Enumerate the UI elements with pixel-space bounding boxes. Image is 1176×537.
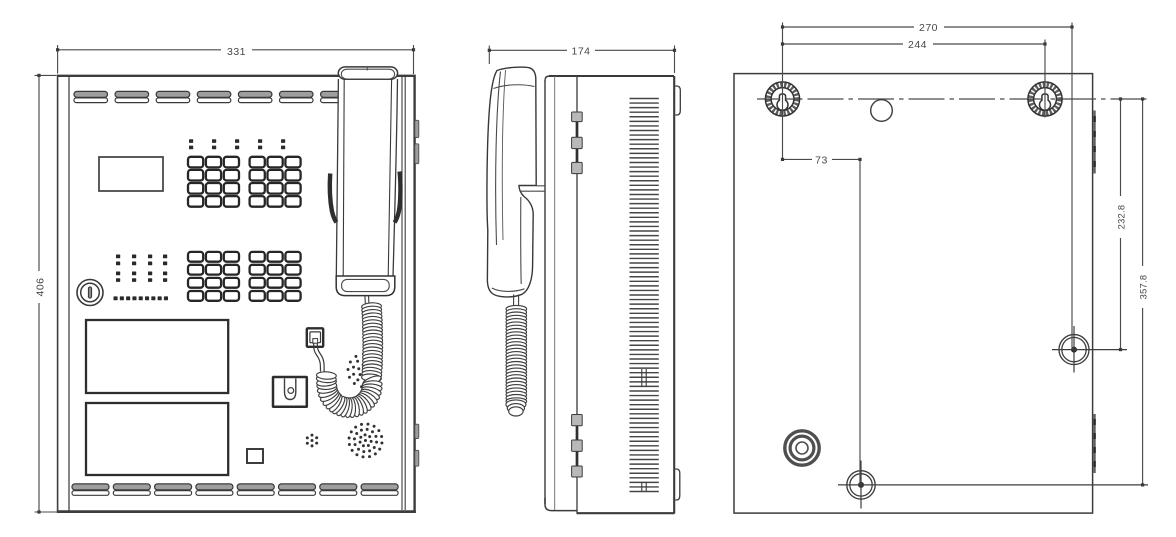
svg-text:232.8: 232.8 [1116, 205, 1126, 230]
svg-text:331: 331 [227, 46, 246, 58]
svg-text:270: 270 [919, 22, 938, 34]
svg-text:406: 406 [35, 277, 47, 296]
svg-text:244: 244 [908, 39, 927, 51]
svg-text:73: 73 [815, 154, 828, 166]
svg-text:174: 174 [571, 46, 590, 58]
svg-text:357.8: 357.8 [1138, 275, 1148, 300]
